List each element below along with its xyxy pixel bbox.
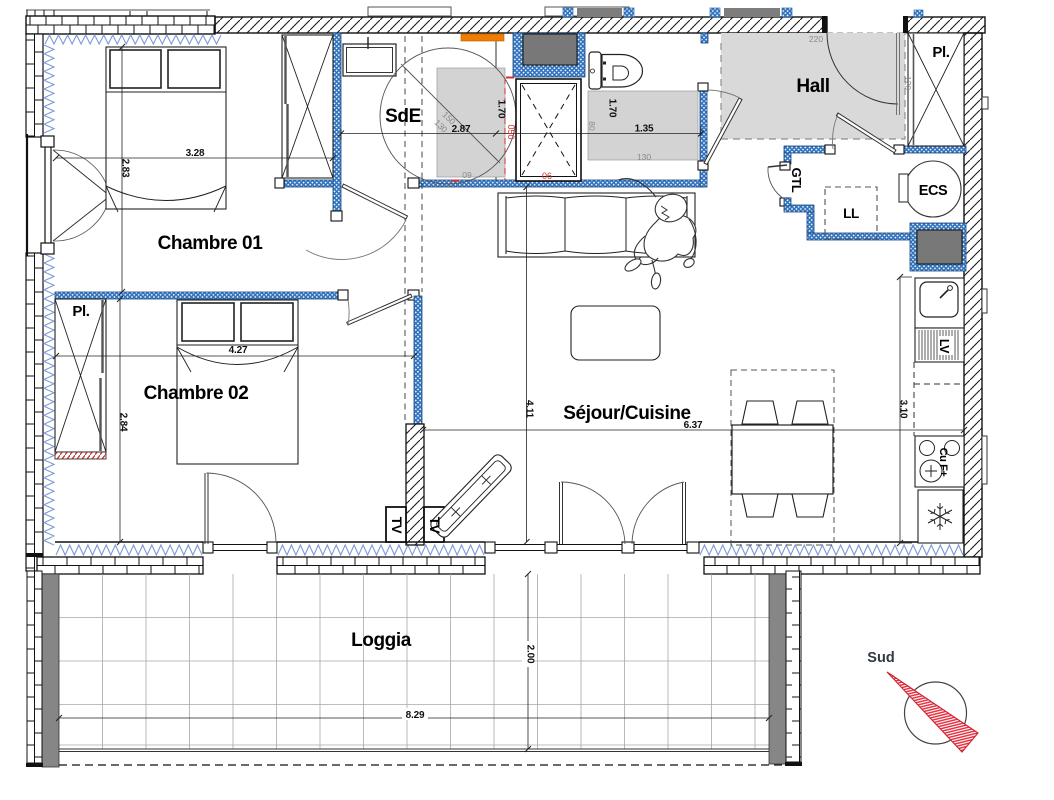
svg-text:050: 050	[506, 124, 516, 139]
svg-text:Pl.: Pl.	[932, 44, 949, 61]
svg-text:4.11: 4.11	[524, 400, 535, 419]
svg-text:LV: LV	[937, 339, 951, 354]
svg-text:09: 09	[462, 170, 472, 180]
svg-text:2.00: 2.00	[525, 645, 536, 664]
svg-text:Chambre 01: Chambre 01	[158, 233, 264, 254]
svg-text:4.27: 4.27	[229, 345, 248, 356]
svg-text:Séjour/Cuisine: Séjour/Cuisine	[563, 403, 690, 424]
svg-text:GTL: GTL	[789, 168, 804, 193]
svg-text:1.70: 1.70	[496, 100, 507, 119]
svg-text:Cu F+: Cu F+	[937, 448, 949, 477]
svg-text:TV: TV	[389, 517, 404, 534]
svg-text:80: 80	[587, 121, 597, 131]
svg-text:120: 120	[903, 76, 913, 90]
svg-text:Loggia: Loggia	[351, 630, 412, 651]
svg-text:2.87: 2.87	[452, 124, 471, 135]
svg-text:3.10: 3.10	[898, 400, 909, 419]
svg-text:1.35: 1.35	[635, 124, 654, 135]
svg-text:06: 06	[542, 171, 552, 181]
svg-text:6.37: 6.37	[684, 420, 703, 431]
svg-text:Hall: Hall	[796, 76, 829, 97]
svg-text:Pl.: Pl.	[72, 303, 89, 320]
svg-text:LL: LL	[843, 206, 859, 221]
svg-text:ECS: ECS	[919, 183, 948, 199]
svg-text:TV: TV	[427, 517, 442, 534]
svg-text:220: 220	[809, 34, 823, 44]
svg-text:SdE: SdE	[385, 106, 421, 127]
svg-text:130: 130	[637, 152, 651, 162]
svg-text:3.28: 3.28	[186, 148, 205, 159]
svg-text:8.29: 8.29	[406, 710, 425, 721]
svg-text:2.84: 2.84	[118, 413, 129, 432]
svg-text:Sud: Sud	[867, 650, 894, 666]
svg-text:Chambre 02: Chambre 02	[144, 383, 249, 404]
svg-text:2.83: 2.83	[120, 159, 131, 178]
svg-text:1.70: 1.70	[607, 99, 618, 118]
